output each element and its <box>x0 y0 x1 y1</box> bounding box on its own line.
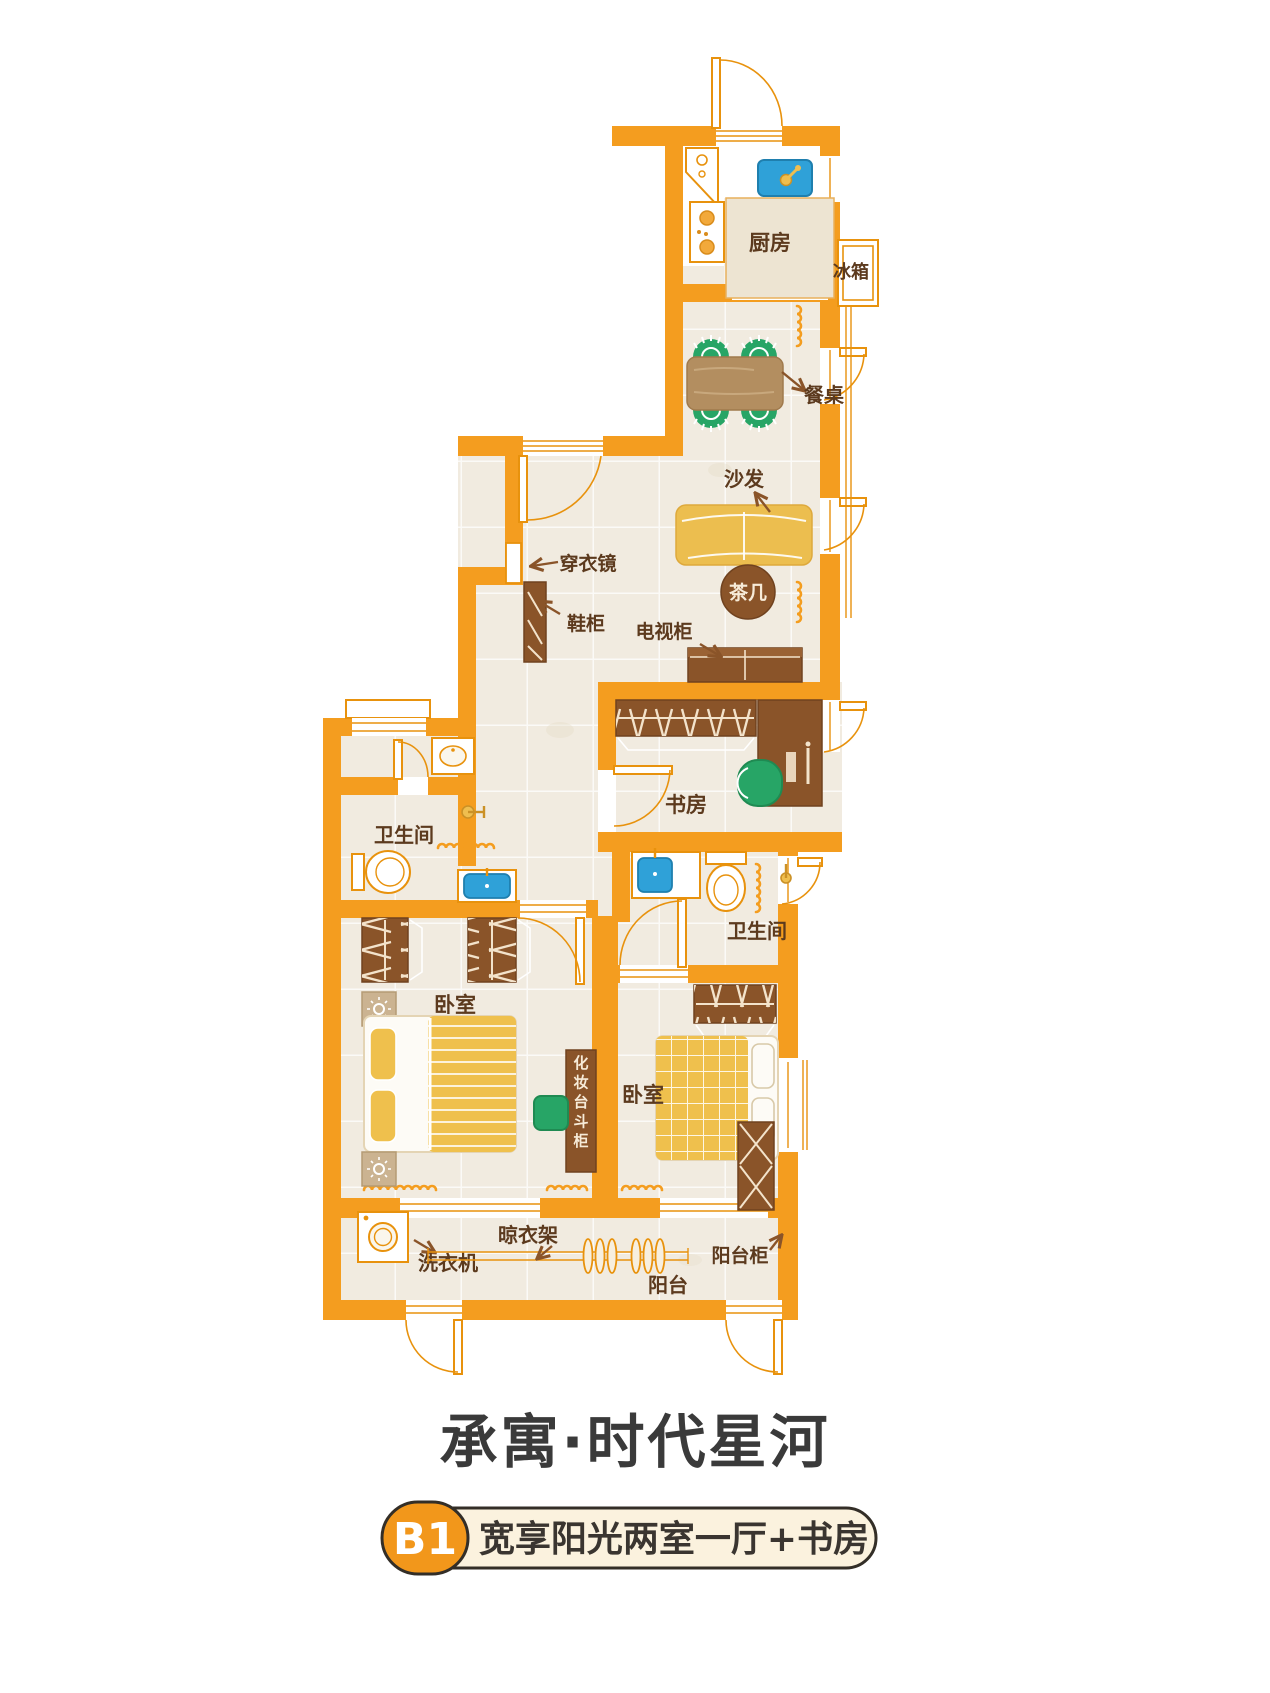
study-label: 书房 <box>665 793 707 817</box>
bed <box>364 1016 516 1152</box>
dressing-mirror-label: 穿衣镜 <box>559 552 616 575</box>
shower-screen <box>756 864 760 912</box>
balcony-cabinet <box>738 1122 774 1210</box>
toilet-icon <box>706 852 746 911</box>
toilet-icon <box>352 851 410 893</box>
kitchen-label: 厨房 <box>749 231 791 255</box>
tv-cabinet <box>688 648 802 682</box>
bedroom-right-label: 卧室 <box>622 1083 664 1107</box>
shoe-cabinet <box>524 582 546 662</box>
floor-plan-page: 厨房 冰箱 餐桌 <box>0 0 1270 1693</box>
unit-badge: B1 宽享阳光两室一厅+书房 <box>382 1502 876 1574</box>
tea-table-label: 茶几 <box>729 581 767 604</box>
shoe-cabinet-label: 鞋柜 <box>567 612 605 635</box>
bathroom-right-label: 卫生间 <box>727 919 787 943</box>
bedroom-right-window <box>778 1058 807 1152</box>
tea-table: 茶几 <box>721 565 775 619</box>
desk-chair <box>738 760 782 806</box>
washing-machine-label: 洗衣机 <box>418 1251 478 1275</box>
drying-rack-label: 晾衣架 <box>498 1223 558 1247</box>
pillow <box>370 1090 396 1142</box>
nightstand <box>362 1152 396 1186</box>
stove-icon <box>690 202 724 262</box>
fridge-label: 冰箱 <box>833 261 869 283</box>
bedroom-left-label: 卧室 <box>434 993 476 1017</box>
pillow <box>752 1044 774 1088</box>
dining-table-label: 餐桌 <box>804 383 845 407</box>
dressing-mirror <box>506 543 521 583</box>
kitchen-sink-icon <box>758 160 812 196</box>
bathroom-left-label: 卫生间 <box>374 823 434 847</box>
unit-code: B1 <box>393 1514 457 1565</box>
makeup-dresser-label: 化妆台斗柜 <box>572 1054 588 1150</box>
kitchen-door <box>712 58 782 146</box>
kitchen-window <box>820 156 840 202</box>
study-window <box>820 700 866 752</box>
stool <box>534 1096 568 1130</box>
bathroom-right-vanity <box>632 848 700 898</box>
washing-machine <box>358 1212 408 1262</box>
caption: 承寓·时代星河 B1 宽享阳光两室一厅+书房 <box>382 1408 876 1574</box>
makeup-dresser: 化妆台斗柜 <box>566 1050 596 1172</box>
pillow <box>370 1028 396 1080</box>
sofa-label: 沙发 <box>724 467 765 491</box>
page-title: 承寓·时代星河 <box>439 1408 830 1476</box>
unit-description: 宽享阳光两室一厅+书房 <box>479 1518 869 1560</box>
balcony-cabinet-label: 阳台柜 <box>711 1244 768 1267</box>
bathroom-left-vanity <box>432 738 474 774</box>
sofa <box>676 505 812 565</box>
bathroom-left-window <box>346 700 430 736</box>
hall-vanity <box>458 868 516 902</box>
living-window <box>820 498 866 554</box>
dining-table <box>687 357 783 410</box>
tv-cabinet-label: 电视柜 <box>635 620 692 643</box>
balcony-label: 阳台 <box>648 1273 688 1297</box>
